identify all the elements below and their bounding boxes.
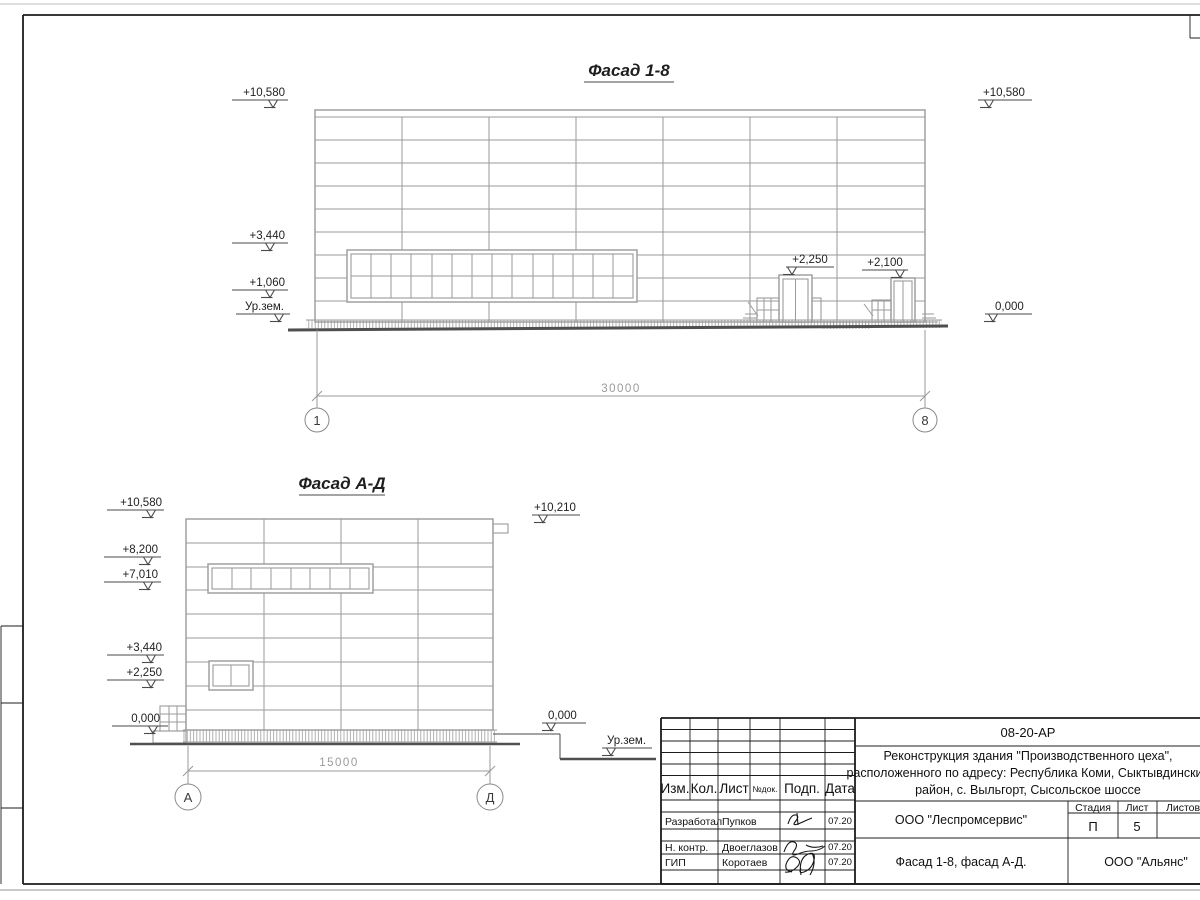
elevation-label: +2,250 [792,254,828,266]
role-row-gip: ГИП Коротаев 07.20 [665,853,852,875]
sheet-header: Лист [1126,802,1149,814]
name: Двоеглазов [722,842,778,854]
project-line-1: Реконструкция здания "Производственного … [884,749,1173,763]
project-line-2: расположенного по адресу: Республика Ком… [846,766,1200,780]
small-window [209,661,253,690]
role-row-ncontrol: Н. контр. Двоеглазов 07.20 [665,842,852,855]
revision-table-header: Изм. Кол. Лист №док. Подп. Дата [661,781,856,796]
ground-level-label: Ур.зем. [245,301,284,313]
elevation-label: +10,580 [983,87,1025,99]
date: 07.20 [828,842,852,853]
date: 07.20 [828,857,852,868]
axis-label: Д [486,790,495,805]
dimension-30000: 30000 [312,330,930,408]
signature [784,842,825,855]
axis-circle-1: 1 [305,408,329,432]
document-code: 08-20-АР [1001,725,1056,740]
elevation-label: +3,440 [250,230,286,242]
elevation-label: 0,000 [995,301,1024,313]
axis-label: 1 [313,413,320,428]
roof-outlet [493,524,508,533]
facade-a-d-wall [186,519,493,730]
col-izm: Изм. [661,781,690,796]
stage-sheet-table: Стадия Лист Листов П 5 [1075,802,1200,834]
stage-value: П [1088,819,1097,834]
elevation-label: +10,210 [534,502,576,514]
facade-a-d-view: Фасад А-Д [104,474,656,810]
facade-1-8-title: Фасад 1-8 [588,61,670,80]
dimension-15000: 15000 [183,746,495,784]
signature [788,813,812,825]
stage-header: Стадия [1075,802,1111,814]
title-block: Изм. Кол. Лист №док. Подп. Дата Разработ… [661,718,1200,884]
sheets-header: Листов [1166,802,1200,814]
dim-value: 30000 [601,383,640,395]
col-data: Дата [825,781,855,796]
drawing-sheet: Фасад 1-8 [0,0,1200,900]
elevation-label: +2,250 [127,667,163,679]
col-kol: Кол. [691,781,718,796]
role-row-developer: Разработал Пупков 07.20 [665,813,852,828]
sheet-value: 5 [1133,819,1140,834]
elevation-label: +10,580 [243,87,285,99]
col-podp: Подп. [784,781,820,796]
elevation-label: +3,440 [127,642,163,654]
window-band [347,250,637,302]
signature [785,853,814,875]
col-list: Лист [719,781,748,796]
elevation-label: +8,200 [123,544,159,556]
role: Н. контр. [665,842,708,854]
elevation-label: 0,000 [131,713,160,725]
role: ГИП [665,857,686,869]
elevation-label: +7,010 [123,569,159,581]
sheet-title: Фасад 1-8, фасад А-Д. [895,855,1026,869]
role: Разработал [665,816,722,828]
design-org: ООО "Леспромсервис" [895,813,1027,827]
window-band [208,564,373,593]
col-doc: №док. [753,784,778,794]
name: Пупков [722,816,757,828]
axis-circle-8: 8 [913,408,937,432]
axis-circle-d: Д [477,784,503,810]
elevation-label: +1,060 [250,277,286,289]
dim-value: 15000 [319,757,358,769]
facade-a-d-title: Фасад А-Д [298,474,385,493]
elevation-label: +2,100 [867,257,903,269]
blind-area [183,730,497,742]
name: Коротаев [722,857,768,869]
facade-1-8-view: Фасад 1-8 [232,61,1032,432]
elevation-label: +10,580 [120,497,162,509]
project-line-3: район, с. Выльгорт, Сысольское шоссе [915,783,1141,797]
project-description: Реконструкция здания "Производственного … [846,749,1200,797]
ground-level-label: Ур.зем. [607,735,646,747]
left-margin-boxes [1,626,23,884]
axis-circle-a: А [175,784,201,810]
contractor-org: ООО "Альянс" [1104,855,1188,869]
plinth-step [153,731,186,743]
drawing-canvas: Фасад 1-8 [0,0,1200,900]
axis-label: А [184,790,193,805]
axis-label: 8 [921,413,928,428]
date: 07.20 [828,816,852,827]
elevation-label: 0,000 [548,710,577,722]
